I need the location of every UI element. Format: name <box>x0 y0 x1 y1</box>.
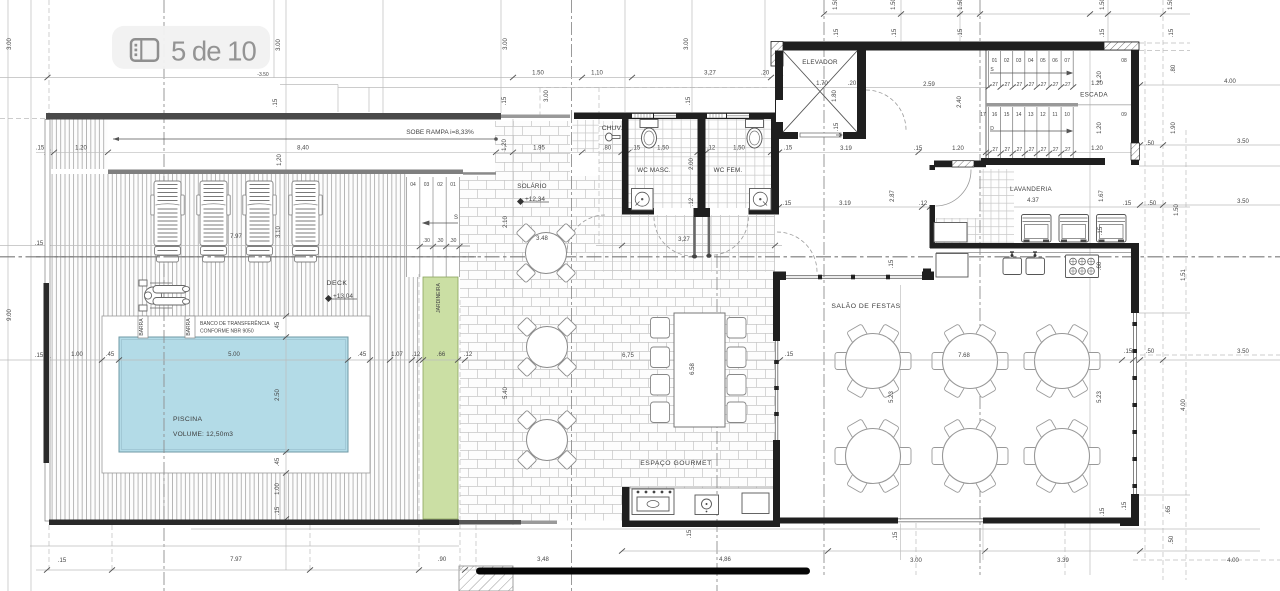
svg-text:3.39: 3.39 <box>1057 558 1069 564</box>
svg-text:12: 12 <box>1040 112 1046 118</box>
svg-text:10: 10 <box>1064 112 1070 118</box>
svg-text:1.50: 1.50 <box>891 0 897 10</box>
svg-text:.27: .27 <box>991 147 998 153</box>
svg-text:17: 17 <box>980 112 986 118</box>
svg-text:1.20: 1.20 <box>952 146 964 152</box>
svg-text:2.40: 2.40 <box>957 96 963 108</box>
svg-text:S: S <box>454 215 458 221</box>
svg-text:15: 15 <box>1004 112 1010 118</box>
svg-text:.15: .15 <box>1122 501 1128 510</box>
svg-text:05: 05 <box>1040 58 1046 64</box>
svg-text:.15: .15 <box>632 146 641 152</box>
svg-text:5.00: 5.00 <box>228 352 240 358</box>
svg-text:11: 11 <box>1052 112 1057 118</box>
svg-text:14: 14 <box>1016 112 1022 118</box>
svg-text:1.20: 1.20 <box>1091 81 1103 87</box>
svg-text:3.00: 3.00 <box>684 38 690 50</box>
svg-text:01: 01 <box>450 182 456 188</box>
svg-text:.66: .66 <box>437 352 446 358</box>
svg-text:.27: .27 <box>1003 147 1010 153</box>
svg-text:1.00: 1.00 <box>275 483 281 495</box>
svg-text:SALÃO DE FESTAS: SALÃO DE FESTAS <box>831 301 900 310</box>
svg-text:BANCO DE TRANSFERÊNCIA: BANCO DE TRANSFERÊNCIA <box>200 319 270 327</box>
svg-text:.27: .27 <box>1039 82 1046 88</box>
svg-text:.12: .12 <box>464 352 473 358</box>
svg-text:5.23: 5.23 <box>889 391 895 403</box>
svg-text:.60: .60 <box>1097 261 1103 270</box>
svg-text:.30: .30 <box>423 238 430 244</box>
svg-text:5.23: 5.23 <box>1097 391 1103 403</box>
svg-text:VOLUME: 12,50m3: VOLUME: 12,50m3 <box>173 431 233 438</box>
svg-text:.90: .90 <box>438 557 447 563</box>
svg-text:.15: .15 <box>958 28 964 37</box>
svg-text:.15: .15 <box>893 531 899 540</box>
svg-text:.27: .27 <box>1027 147 1034 153</box>
svg-text:.50: .50 <box>1146 349 1155 355</box>
svg-text:CONFORME NBR 9050: CONFORME NBR 9050 <box>200 329 254 335</box>
svg-text:1.50: 1.50 <box>1174 204 1180 216</box>
svg-text:3.19: 3.19 <box>840 146 852 152</box>
svg-text:.27: .27 <box>1039 147 1046 153</box>
svg-text:5.40: 5.40 <box>503 387 509 399</box>
svg-text:7.97: 7.97 <box>230 557 242 563</box>
svg-text:4.00: 4.00 <box>1224 79 1236 85</box>
svg-text:PISCINA: PISCINA <box>173 416 202 423</box>
svg-text:16: 16 <box>992 112 998 118</box>
svg-text:.15: .15 <box>785 352 794 358</box>
svg-text:02: 02 <box>437 182 443 188</box>
svg-text:09: 09 <box>1121 112 1127 118</box>
svg-text:1.50: 1.50 <box>1100 0 1106 10</box>
svg-text:06: 06 <box>1052 58 1058 64</box>
svg-text:3,27: 3,27 <box>678 237 690 243</box>
svg-text:1.90: 1.90 <box>1171 122 1177 134</box>
svg-text:3.50: 3.50 <box>1237 139 1249 145</box>
svg-text:1,20: 1,20 <box>277 154 283 166</box>
svg-text:.80: .80 <box>1171 64 1177 73</box>
svg-text:1.00: 1.00 <box>71 352 83 358</box>
svg-text:03: 03 <box>1016 58 1022 64</box>
svg-text:.15: .15 <box>58 558 67 564</box>
svg-text:02: 02 <box>1004 58 1010 64</box>
svg-text:.15: .15 <box>687 529 693 538</box>
svg-text:WC MASC.: WC MASC. <box>637 167 671 174</box>
svg-text:08: 08 <box>1121 58 1127 64</box>
svg-text:.30: .30 <box>450 238 457 244</box>
svg-text:.12: .12 <box>689 197 695 206</box>
svg-text:DECK: DECK <box>327 280 348 287</box>
svg-text:.50: .50 <box>1148 201 1157 207</box>
svg-text:3.00: 3.00 <box>276 39 282 51</box>
svg-text:1.50: 1.50 <box>1168 0 1174 10</box>
svg-text:.45: .45 <box>275 457 281 466</box>
svg-text:7.97: 7.97 <box>230 234 242 240</box>
svg-text:ELEVADOR: ELEVADOR <box>802 59 838 66</box>
svg-text:07: 07 <box>1064 58 1070 64</box>
svg-text:3,48: 3,48 <box>537 557 549 563</box>
svg-text:4.00: 4.00 <box>1181 399 1187 411</box>
svg-text:1.70: 1.70 <box>816 81 828 87</box>
svg-text:3.00: 3.00 <box>910 558 922 564</box>
svg-text:CHUV.: CHUV. <box>602 125 623 132</box>
svg-text:.27: .27 <box>991 82 998 88</box>
svg-text:1.20: 1.20 <box>1097 122 1103 134</box>
svg-text:3.00: 3.00 <box>7 38 13 50</box>
svg-text:.15: .15 <box>1123 201 1132 207</box>
svg-text:8,40: 8,40 <box>297 146 309 152</box>
svg-text:.45: .45 <box>358 352 367 358</box>
svg-text:4.00: 4.00 <box>1227 558 1239 564</box>
svg-text:2.10: 2.10 <box>503 216 509 228</box>
svg-text:BARRA: BARRA <box>139 318 145 336</box>
svg-text:1,50: 1,50 <box>733 146 745 152</box>
svg-text:ESPAÇO GOURMET: ESPAÇO GOURMET <box>640 460 711 467</box>
svg-text:3.10: 3.10 <box>276 226 282 238</box>
svg-text:.15: .15 <box>502 96 508 105</box>
svg-text:1.50: 1.50 <box>833 0 839 10</box>
svg-text:9.00: 9.00 <box>7 309 13 321</box>
svg-text:1.20: 1.20 <box>1091 146 1103 152</box>
svg-text:ESCADA: ESCADA <box>1080 92 1108 99</box>
svg-text:.15: .15 <box>892 28 898 37</box>
svg-text:.15: .15 <box>1124 349 1133 355</box>
svg-text:01: 01 <box>992 58 998 64</box>
svg-text:.15: .15 <box>1169 28 1175 37</box>
svg-text:3,27: 3,27 <box>704 71 716 77</box>
svg-text:2.59: 2.59 <box>923 82 935 88</box>
svg-text:03: 03 <box>424 182 430 188</box>
svg-text:6,75: 6,75 <box>622 353 634 359</box>
svg-text:.27: .27 <box>1027 82 1034 88</box>
svg-text:.15: .15 <box>834 122 840 131</box>
svg-text:.15: .15 <box>783 201 792 207</box>
svg-text:1,20: 1,20 <box>502 139 508 151</box>
svg-text:4.37: 4.37 <box>1027 198 1039 204</box>
svg-text:.20: .20 <box>848 81 857 87</box>
svg-text:1,50: 1,50 <box>657 146 669 152</box>
svg-text:.15: .15 <box>36 146 45 152</box>
svg-text:.45: .45 <box>106 352 115 358</box>
svg-text:1.67: 1.67 <box>1099 190 1105 202</box>
svg-text:.27: .27 <box>1015 82 1022 88</box>
svg-text:2.00: 2.00 <box>689 158 695 170</box>
svg-text:3.00: 3.00 <box>503 38 509 50</box>
svg-text:3.50: 3.50 <box>1237 199 1249 205</box>
svg-text:.15: .15 <box>1098 226 1104 235</box>
svg-text:04: 04 <box>1028 58 1034 64</box>
svg-text:.15: .15 <box>275 506 281 515</box>
svg-text:.12: .12 <box>707 146 716 152</box>
svg-text:D: D <box>990 126 994 132</box>
svg-text:1.07: 1.07 <box>391 352 403 358</box>
svg-text:.80: .80 <box>603 146 612 152</box>
svg-text:.27: .27 <box>1015 147 1022 153</box>
svg-text:.30: .30 <box>437 238 444 244</box>
svg-text:.12: .12 <box>412 352 421 358</box>
svg-text:1.51: 1.51 <box>1181 269 1187 281</box>
svg-text:5 de 10: 5 de 10 <box>171 35 256 66</box>
svg-text:3.00: 3.00 <box>544 90 550 102</box>
svg-text:04: 04 <box>410 182 416 188</box>
svg-text:2.87: 2.87 <box>890 190 896 202</box>
svg-text:7.68: 7.68 <box>958 353 970 359</box>
svg-text:1.80: 1.80 <box>832 90 838 102</box>
svg-text:.12: .12 <box>919 201 928 207</box>
svg-text:.27: .27 <box>1064 82 1071 88</box>
svg-text:.15: .15 <box>273 98 279 107</box>
svg-text:.15: .15 <box>1100 507 1106 516</box>
svg-text:BARRA: BARRA <box>186 318 192 336</box>
svg-text:JARDINEIRA: JARDINEIRA <box>436 282 442 312</box>
svg-text:13: 13 <box>1028 112 1034 118</box>
svg-text:.15: .15 <box>914 146 923 152</box>
svg-text:1.20: 1.20 <box>75 146 87 152</box>
svg-text:1.50: 1.50 <box>532 71 544 77</box>
svg-text:.65: .65 <box>1166 505 1172 514</box>
svg-text:.15: .15 <box>834 28 840 37</box>
svg-text:3.19: 3.19 <box>839 201 851 207</box>
svg-text:.15: .15 <box>686 96 692 105</box>
svg-text:.15: .15 <box>35 353 44 359</box>
svg-text:.50: .50 <box>1169 535 1175 544</box>
svg-text:3.50: 3.50 <box>1237 349 1249 355</box>
svg-text:.27: .27 <box>1003 82 1010 88</box>
svg-text:1.50: 1.50 <box>958 0 964 10</box>
svg-text:SOBE RAMPA i=8,33%: SOBE RAMPA i=8,33% <box>406 129 474 136</box>
svg-text:6.58: 6.58 <box>690 363 696 375</box>
svg-text:1,10: 1,10 <box>591 71 603 77</box>
svg-text:3.48: 3.48 <box>536 236 548 242</box>
svg-text:-3.50: -3.50 <box>257 72 269 78</box>
svg-text:.20: .20 <box>761 71 770 77</box>
svg-text:4,86: 4,86 <box>719 557 731 563</box>
svg-text:WC FEM.: WC FEM. <box>714 167 743 174</box>
svg-text:.15: .15 <box>1100 28 1106 37</box>
svg-text:LAVANDERIA: LAVANDERIA <box>1010 186 1052 193</box>
svg-text:.27: .27 <box>1052 147 1059 153</box>
svg-text:.15: .15 <box>784 146 793 152</box>
svg-text:.50: .50 <box>1146 141 1155 147</box>
svg-text:.15: .15 <box>35 241 44 247</box>
svg-text:1.95: 1.95 <box>533 146 545 152</box>
svg-text:.27: .27 <box>1064 147 1071 153</box>
svg-text:SOLÁRIO: SOLÁRIO <box>517 181 546 190</box>
svg-text:.45: .45 <box>275 321 281 330</box>
svg-text:.15: .15 <box>889 259 895 268</box>
svg-text:2.50: 2.50 <box>275 389 281 401</box>
svg-text:.27: .27 <box>1052 82 1059 88</box>
